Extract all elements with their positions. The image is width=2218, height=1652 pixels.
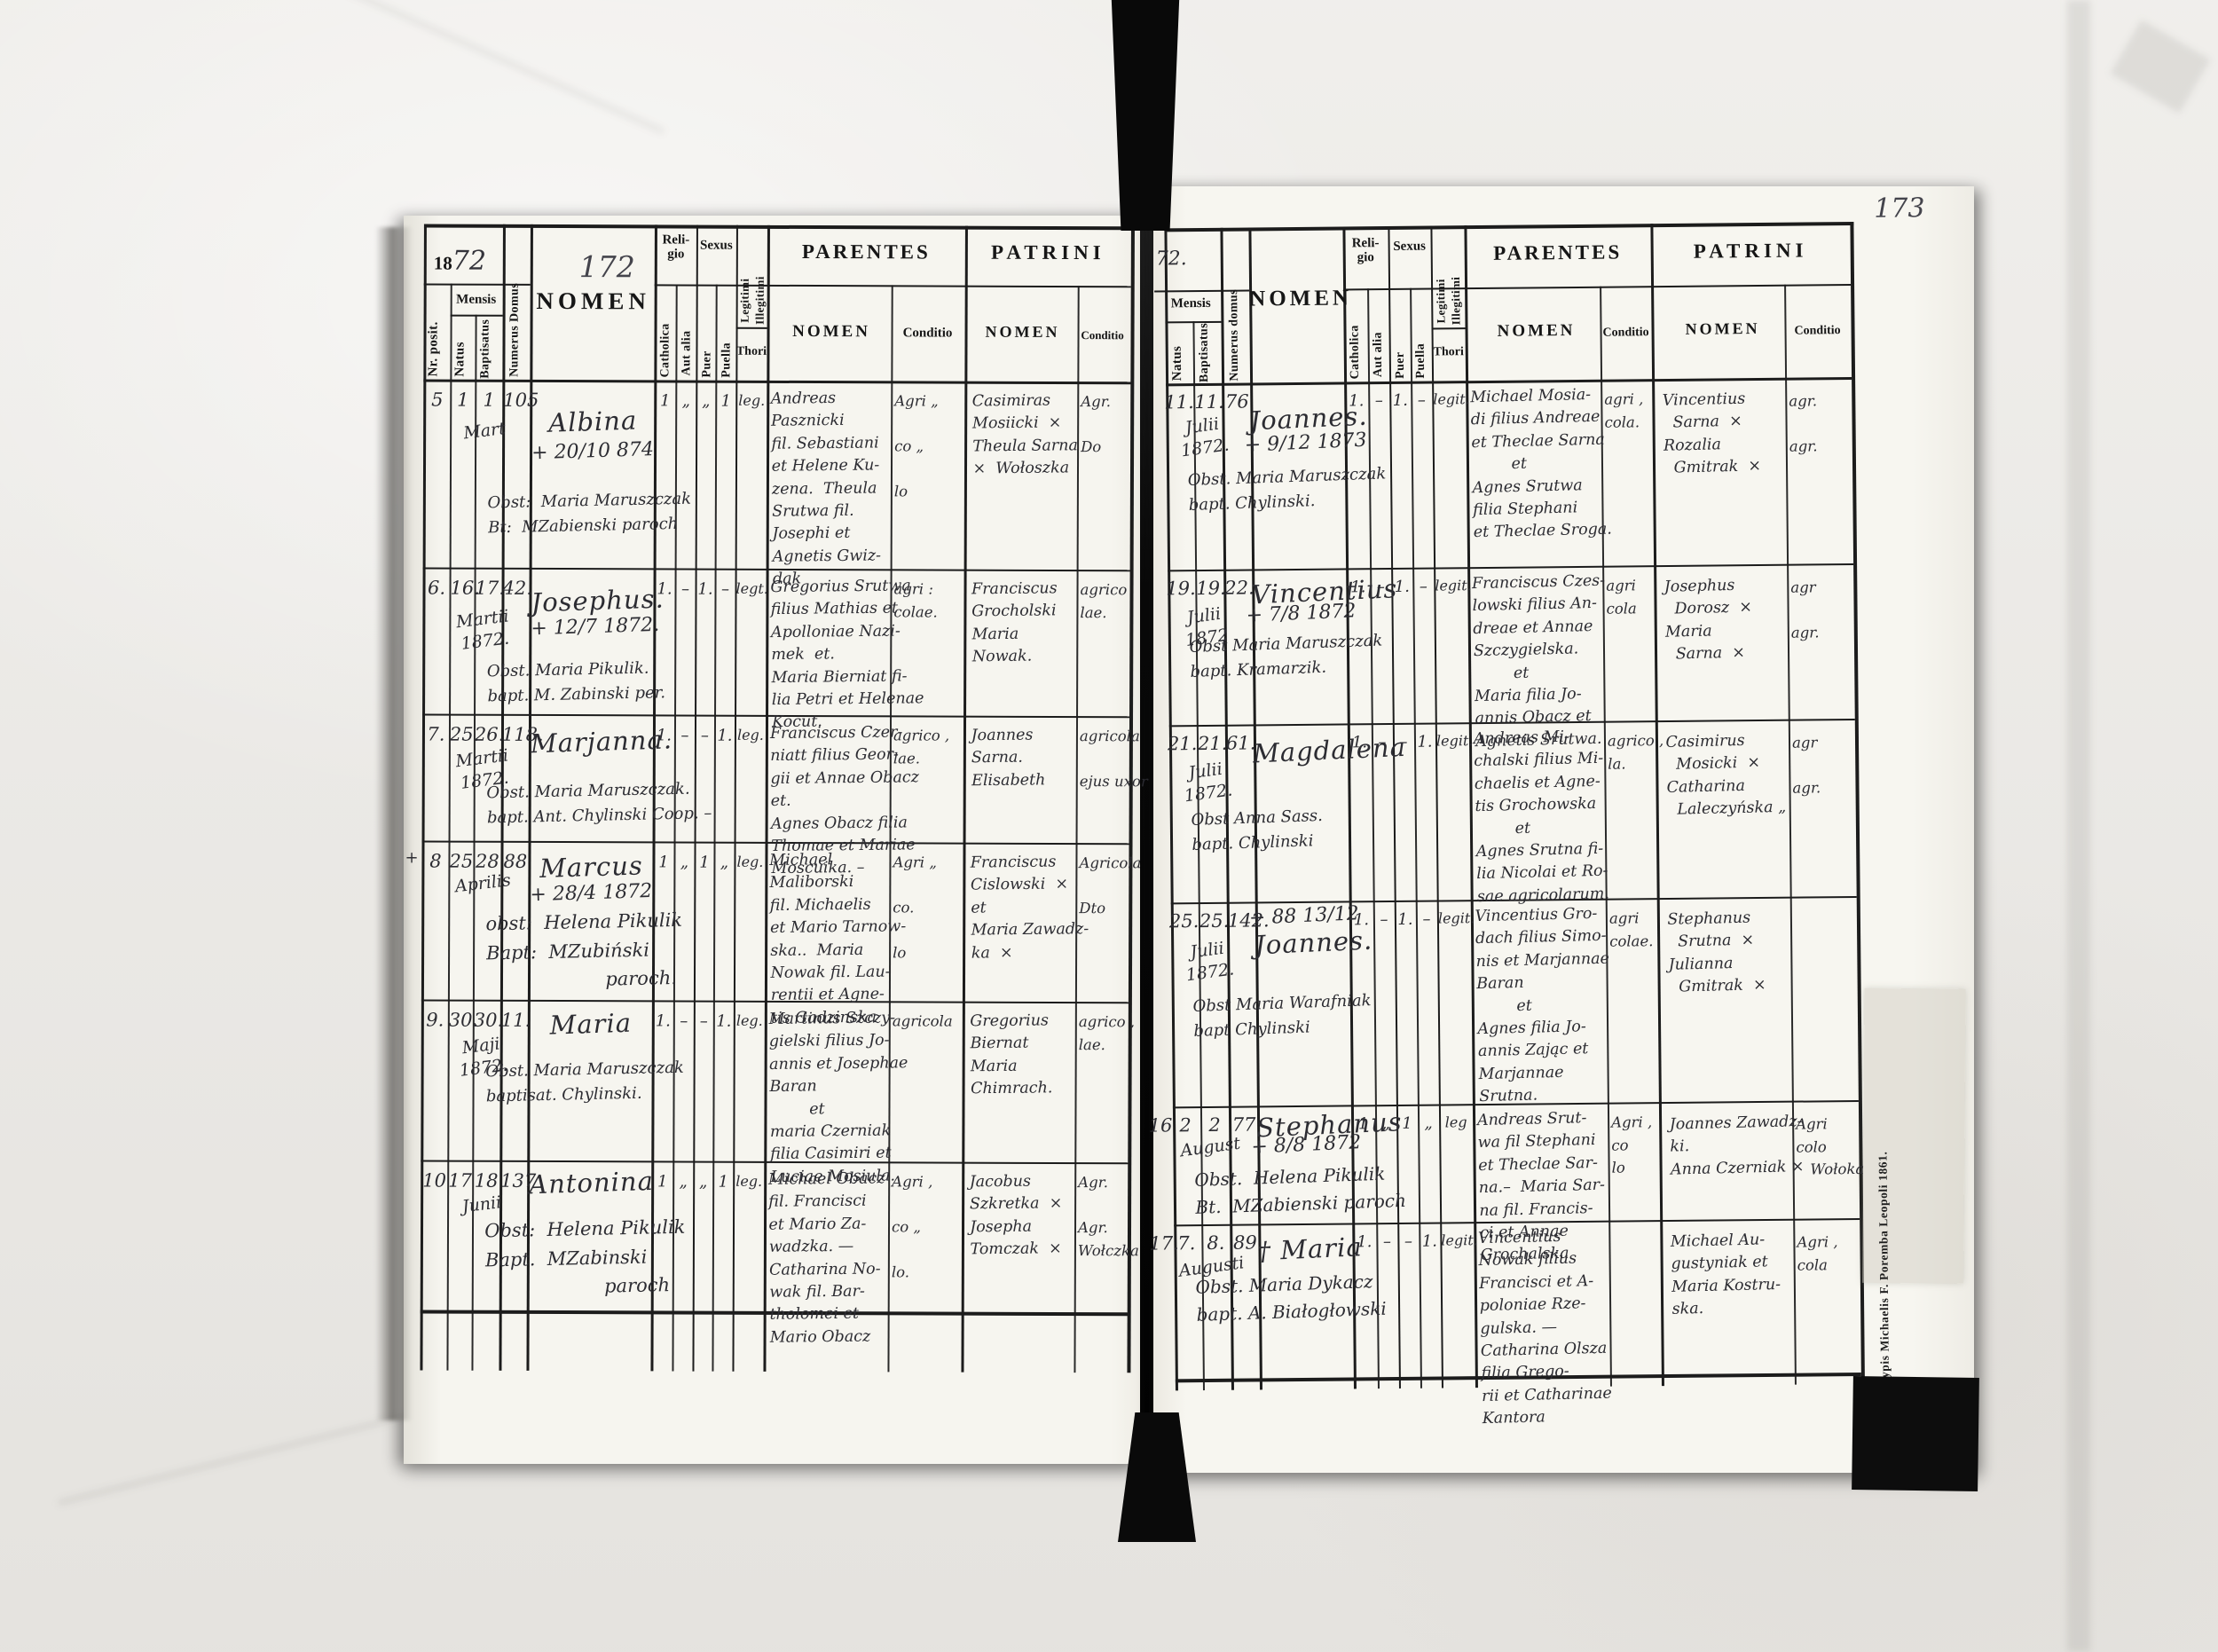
record-baptisatus-day: 21.	[1198, 732, 1224, 757]
godparents-conditio: Agr. Do	[1081, 390, 1111, 459]
record-nr: 17.	[1149, 1231, 1174, 1256]
sexus-puer-mark: 1.	[1396, 909, 1415, 931]
religio-aut-alia-mark: –	[1372, 732, 1392, 753]
thori-mark: legit.	[1441, 1231, 1473, 1249]
col-header-religio: Reli- gio	[1343, 237, 1388, 265]
record-natus-day: 7.	[1172, 1231, 1200, 1256]
midwife-baptizer-note: Obst Maria Maruszczak bapt. Kramarzik.	[1189, 625, 1466, 684]
record-nr: 10	[421, 1168, 447, 1193]
godparents-entry: Franciscus Cislowski × et Maria Zawadz- …	[971, 851, 1089, 964]
parents-conditio: agrico , la.	[1608, 729, 1664, 775]
thori-mark: leg.	[735, 853, 765, 871]
col-header-religio: Reli- gio	[656, 233, 696, 262]
paper-crease	[240, 0, 664, 134]
sexus-puer-mark: –	[1394, 732, 1413, 753]
record-baptisatus-day: 11.	[1194, 390, 1221, 415]
rule-line	[451, 315, 503, 317]
thori-mark: leg.	[735, 726, 766, 744]
record-row: 10 17 18 Junii 137 Antonina Obst: Helena…	[400, 1160, 1137, 1312]
record-house-number: 22.	[1224, 576, 1253, 601]
col-header-nomen: NOMEN	[1249, 287, 1343, 311]
register-left-page: 1872 172 Nr. posit. Mensis Natus Baptisa…	[404, 216, 1140, 1464]
sexus-puer-mark: –	[1398, 1231, 1418, 1253]
record-death-note: + 8/8 1872	[1251, 1129, 1362, 1160]
religio-aut-alia-mark: –	[1374, 909, 1394, 931]
midwife-baptizer-note: Obst. Maria Maruszczak bapt. Chylinski.	[1187, 459, 1464, 517]
parents-conditio: agrico , lae.	[893, 724, 949, 769]
record-house-number: 61.	[1226, 731, 1255, 756]
record-baptisatus-day: 19.	[1196, 577, 1223, 602]
religio-aut-alia-mark: –	[675, 578, 695, 600]
record-nr: 5	[424, 389, 450, 413]
record-name: Maria	[529, 1005, 652, 1043]
sexus-puella-mark: 1.	[1415, 732, 1435, 753]
religio-catholica-mark: 1.	[654, 578, 674, 600]
sexus-puella-mark: 1.	[1420, 1231, 1439, 1253]
col-header-parentes: PARENTES	[767, 241, 965, 264]
right-page-sheet: 72. 173 Mensis Natus Baptisatus Numerus …	[1153, 185, 1986, 1480]
scan-dark-corner	[1852, 1376, 1979, 1491]
record-row: 25. 25. Julii 1872. 142. + 88 13/12 Joan…	[1160, 895, 1983, 1107]
record-natus-day: 17	[448, 1169, 472, 1194]
midwife-baptizer-note: Obst Anna Sass. bapt. Chylinski	[1191, 798, 1467, 857]
col-header-patrini-nomen: NOMEN	[971, 324, 1074, 341]
record-baptisatus-day: 1	[476, 389, 502, 413]
col-header-puella: Puella	[720, 326, 734, 378]
religio-catholica-mark: 1	[653, 852, 673, 873]
record-baptisatus-day: 26.	[475, 723, 501, 748]
parents-entry: Vincentius Gro- dach filius Simo- nis et…	[1475, 903, 1613, 1109]
col-header-baptisatus: Baptisatus	[478, 317, 492, 379]
record-baptisatus-day: 30.	[474, 1009, 500, 1034]
register-scan: 1872 172 Nr. posit. Mensis Natus Baptisa…	[0, 0, 2218, 1652]
col-header-parentes-conditio: Conditio	[1601, 326, 1652, 340]
parents-conditio: Agri , co lo	[1611, 1111, 1653, 1179]
record-nr: 7.	[423, 723, 449, 748]
record-natus-day: 2	[1171, 1113, 1199, 1138]
religio-catholica-mark: 1.	[1349, 732, 1371, 753]
religio-catholica-mark: 1.	[1350, 909, 1372, 931]
record-natus-day: 1	[451, 389, 475, 413]
paper-crease	[2067, 0, 2090, 1652]
left-page-sheet: 1872 172 Nr. posit. Mensis Natus Baptisa…	[399, 215, 1140, 1466]
col-header-parentes-conditio: Conditio	[893, 326, 963, 341]
godparents-entry: Josephus Dorosz × Maria Sarna ×	[1664, 574, 1754, 666]
midwife-baptizer-note: Obst. Maria Maruszczak. bapt. Ant. Chyli…	[486, 775, 753, 830]
record-month: Julii 1872.	[1152, 932, 1267, 991]
record-name: Joannes.	[1254, 924, 1355, 962]
sexus-puer-mark: 1.	[1392, 577, 1412, 598]
parents-conditio: Agri „ co. lo	[893, 851, 937, 964]
record-baptisatus-day: 17.	[475, 577, 501, 602]
col-header-numerus-domus: Numerus Domus	[507, 288, 522, 377]
midwife-baptizer-note: Obst. Helena Pikulik Bt. MZabienski paro…	[1194, 1157, 1471, 1222]
midwife-baptizer-note: Obst: Helena Pikulik Bapt. MZabinski par…	[484, 1211, 752, 1303]
record-death-note: + 20/10 874	[531, 437, 655, 466]
godparents-conditio: agrico , lae.	[1079, 1011, 1135, 1056]
record-row: + 8 25 28 Aprilis 88 Marcus + 28/4 1872 …	[401, 840, 1138, 1002]
col-header-parentes-nomen: NOMEN	[1474, 322, 1598, 341]
sexus-puella-mark: „	[1419, 1113, 1438, 1135]
parents-conditio: agri colae.	[1609, 907, 1654, 953]
godparents-entry: Casimirus Mosicki × Catharina Laleczyńsk…	[1665, 729, 1786, 822]
sexus-puella-mark: –	[715, 579, 735, 601]
religio-catholica-mark: 1.	[653, 1011, 673, 1032]
folio-number: 172	[579, 248, 635, 287]
record-natus-day: 11.	[1164, 390, 1192, 415]
sexus-puella-mark: 1	[716, 391, 735, 413]
godparents-conditio: agrico lae.	[1080, 578, 1127, 624]
record-name: Marjanna.	[530, 723, 653, 761]
col-header-sexus: Sexus	[1388, 240, 1431, 255]
col-header-legitimi: Legitimi	[738, 229, 752, 323]
sexus-puer-mark: 1	[1397, 1113, 1417, 1135]
record-baptisatus-day: 8.	[1202, 1231, 1229, 1256]
col-header-mensis: Mensis	[1161, 297, 1220, 311]
col-header-baptisatus: Baptisatus	[1197, 322, 1212, 382]
record-house-number: 88	[501, 850, 529, 875]
record-natus-day: 30.	[449, 1009, 473, 1034]
record-house-number: 137	[500, 1169, 528, 1194]
record-death-note: + 12/7 1872.	[531, 612, 654, 641]
record-month: Mart	[429, 413, 540, 449]
record-month: Julii 1872.	[1150, 753, 1265, 812]
godparents-conditio: Agr. Agr. Wołczka	[1078, 1171, 1139, 1262]
folio-number: 173	[1874, 191, 1925, 226]
godparents-conditio: agr agr.	[1790, 576, 1819, 644]
record-nr: 6.	[423, 577, 449, 602]
record-natus-day: 25.	[1169, 909, 1198, 934]
parents-conditio: Agri , co „ lo.	[892, 1170, 933, 1284]
record-natus-day: 21.	[1168, 732, 1196, 757]
record-house-number: 89	[1231, 1231, 1259, 1255]
record-row: 5 1 1 Mart 105 Albina + 20/10 874 Obst: …	[403, 379, 1140, 570]
thori-mark: legit.	[1435, 576, 1467, 594]
col-header-nomen: NOMEN	[532, 288, 655, 314]
religio-aut-alia-mark: „	[673, 1171, 693, 1192]
midwife-baptizer-note: Obst Maria Warafniak bapt Chylinski	[1192, 985, 1469, 1043]
sexus-puer-mark: 1.	[696, 579, 714, 601]
religio-catholica-mark: 1	[1352, 1113, 1374, 1135]
thori-mark: leg.	[735, 1011, 765, 1030]
record-house-number: 105	[503, 389, 531, 413]
thori-mark: legit.	[1433, 389, 1465, 408]
thori-mark: legt.	[735, 579, 766, 598]
sexus-puer-mark: –	[695, 1011, 713, 1033]
record-month: Martii 1872.	[427, 602, 541, 659]
sexus-puella-mark: –	[1412, 390, 1431, 412]
page-edge-smudge	[375, 227, 413, 1420]
thori-mark: legit.	[1436, 731, 1468, 750]
record-row: 6. 16. 17. Martii 1872. 42. Josephus. + …	[402, 567, 1139, 716]
col-header-catholica: Catholica	[658, 299, 672, 377]
midwife-baptizer-note: obst: Helena Pikulik Bapt: MZubiński par…	[485, 904, 753, 996]
religio-catholica-mark: 1.	[1345, 390, 1367, 412]
record-row: 21. 21. Julii 1872. 61. Magdalena Obst A…	[1159, 718, 1981, 903]
col-header-sexus: Sexus	[696, 240, 736, 254]
record-natus-day: 25.	[450, 723, 474, 748]
parents-entry: Michael Mosia- di filius Andreae et Thec…	[1470, 384, 1612, 545]
year-printed: 18	[434, 253, 452, 274]
thori-mark: leg.	[736, 391, 767, 410]
godparents-entry: Franciscus Grocholski Maria Nowak.	[971, 578, 1058, 669]
religio-aut-alia-mark: „	[674, 852, 694, 873]
record-death-note: + 9/12 1873	[1244, 428, 1355, 459]
parents-conditio: agri : colae.	[893, 578, 937, 623]
record-baptisatus-day: 18	[473, 1169, 499, 1194]
sexus-puella-mark: 1	[713, 1172, 733, 1193]
religio-aut-alia-mark: –	[1371, 577, 1390, 598]
col-header-aut-alia: Aut alia	[1371, 308, 1386, 377]
register-right-page: 72. 173 Mensis Natus Baptisatus Numerus …	[1153, 186, 1974, 1473]
col-header-catholica: Catholica	[1348, 303, 1363, 379]
col-header-patrini-conditio: Conditio	[1076, 329, 1129, 342]
godparents-conditio: agr agr.	[1792, 731, 1821, 799]
sexus-puer-mark: –	[696, 726, 714, 747]
religio-aut-alia-mark: –	[675, 725, 695, 746]
religio-aut-alia-mark: –	[674, 1011, 694, 1032]
year-handwritten: 72	[452, 246, 486, 277]
thori-mark: leg.	[734, 1172, 764, 1191]
record-name: Albina	[531, 403, 655, 441]
godparents-conditio: Agricola Dto	[1079, 852, 1141, 920]
godparents-entry: Casimiras Mosiicki × Theula Sarna × Woło…	[972, 389, 1079, 481]
sexus-puella-mark: –	[1413, 577, 1433, 598]
record-house-number: 42.	[502, 577, 530, 602]
record-name: † Maria	[1257, 1230, 1358, 1268]
parents-conditio: agri cola	[1606, 574, 1637, 619]
parents-entry: Andreas Pasznicki fil. Sebastiani et Hel…	[771, 387, 882, 591]
sexus-puer-mark: „	[696, 391, 715, 413]
record-natus-day: 25	[449, 850, 473, 875]
sexus-puer-mark: 1.	[1390, 390, 1410, 412]
record-row: 16 2 2 August 77 Stephanus + 8/8 1872 Ob…	[1162, 1099, 1984, 1225]
record-nr: 16	[1148, 1113, 1173, 1138]
record-baptisatus-day: 25.	[1199, 909, 1226, 934]
record-death-note: + 28/4 1872	[530, 878, 653, 908]
godparents-entry: Jacobus Szkretka × Josepha Tomczak ×	[970, 1170, 1063, 1262]
sexus-puer-mark: 1	[695, 853, 713, 874]
godparents-entry: Vincentius Sarna × Rozalia Gmitrak ×	[1662, 388, 1761, 480]
record-house-number: 76	[1223, 390, 1251, 415]
parents-conditio: agricola	[893, 1010, 953, 1033]
col-header-illegitimi: Illegitimi	[753, 227, 767, 325]
godparents-conditio: Agri colo Wołoka	[1796, 1113, 1864, 1181]
parents-conditio: Agri „ co „ lo	[894, 389, 939, 503]
col-header-legitimi: Legitimi	[1433, 229, 1448, 323]
religio-aut-alia-mark: „	[676, 390, 696, 412]
sexus-puella-mark: 1.	[714, 1011, 734, 1033]
godparents-entry: Gregorius Biernat Maria Chimrach.	[970, 1010, 1052, 1100]
record-natus-day: 19.	[1166, 577, 1194, 602]
col-header-natus: Natus	[1169, 326, 1185, 381]
col-header-patrini-conditio: Conditio	[1787, 325, 1849, 338]
col-header-nr-posit: Nr. posit.	[426, 297, 441, 377]
religio-aut-alia-mark: –	[1377, 1231, 1396, 1253]
midwife-baptizer-note: Obst. Maria Dykacz bapt. A. Białogłowski	[1195, 1264, 1472, 1329]
col-header-patrini-nomen: NOMEN	[1664, 320, 1780, 338]
record-row: 19. 19. Julii 1872 22. Vincentius + 7/8 …	[1157, 562, 1979, 726]
year-handwritten: 72.	[1156, 246, 1187, 271]
rule-line	[736, 327, 767, 329]
record-natus-day: 16.	[450, 577, 474, 602]
thori-mark: legit.	[1438, 909, 1470, 927]
record-row: 7. 25. 26. Martii 1872. 118. Marjanna. O…	[402, 713, 1138, 843]
col-header-puer: Puer	[700, 332, 714, 378]
religio-aut-alia-mark: „	[1376, 1113, 1396, 1135]
col-header-aut-alia: Aut alia	[680, 305, 694, 376]
sexus-puer-mark: „	[694, 1172, 712, 1193]
midwife-baptizer-note: Obst. Maria Maruszczak baptisat. Chylins…	[485, 1054, 752, 1109]
record-name: Magdalena	[1252, 732, 1353, 770]
godparents-entry: Stephanus Srutna × Julianna Gmitrak ×	[1667, 907, 1766, 999]
record-nr: 8	[422, 850, 448, 875]
sexus-puella-mark: „	[714, 853, 734, 874]
col-header-puer: Puer	[1394, 333, 1408, 379]
godparents-conditio: agr. agr.	[1789, 389, 1817, 458]
record-name: Antonina	[529, 1164, 652, 1202]
col-header-mensis: Mensis	[448, 294, 505, 308]
religio-catholica-mark: 1.	[654, 725, 674, 746]
record-nr: 9.	[422, 1008, 448, 1033]
record-row: 11. 11. Julii 1872. 76 Joannes. + 9/12 1…	[1155, 376, 1978, 570]
religio-catholica-mark: 1	[652, 1171, 672, 1192]
col-header-thori: Thori	[735, 346, 767, 359]
record-house-number: 11.	[501, 1009, 529, 1034]
religio-aut-alia-mark: –	[1369, 390, 1388, 412]
col-header-natus: Natus	[452, 320, 468, 377]
paper-crease	[2111, 20, 2211, 114]
religio-catholica-mark: 1.	[1347, 577, 1369, 598]
col-header-parentes-nomen: NOMEN	[776, 323, 887, 341]
col-header-thori: Thori	[1432, 346, 1466, 359]
parents-entry: Vincentius Nowak filius Francisci et A- …	[1478, 1225, 1613, 1431]
col-header-parentes: PARENTES	[1465, 241, 1651, 264]
godparents-conditio: agricola ejus uxor	[1080, 725, 1148, 793]
printer-imprint: Typis Michaelis F. Poremba Leopoli 1861.	[1876, 1151, 1892, 1385]
record-row: 9. 30. 30. Maji 1872. 11. Maria Obst. Ma…	[400, 999, 1137, 1162]
col-header-patrini: PATRINI	[1651, 240, 1851, 263]
parents-entry: Michael Obacz fil. Francisci et Mario Za…	[768, 1168, 887, 1349]
year-label: 1872	[434, 246, 486, 277]
sexus-puella-mark: –	[1417, 909, 1436, 931]
midwife-baptizer-note: Obst: Maria Maruszczak Bt: MZabienski pa…	[487, 485, 754, 540]
record-house-number: 118.	[502, 723, 530, 748]
midwife-baptizer-note: Obst. Maria Pikulik. bapt. M. Zabinski p…	[487, 654, 754, 709]
col-header-illegitimi: Illegitimi	[1448, 227, 1463, 325]
godparents-entry: Michael Au- gustyniak et Maria Kostru- s…	[1671, 1229, 1781, 1321]
rule-line	[1432, 327, 1466, 329]
religio-catholica-mark: 1.	[1353, 1231, 1375, 1253]
religio-catholica-mark: 1	[655, 390, 675, 412]
thori-mark: leg	[1440, 1113, 1472, 1131]
col-header-numerus-domus: Numerus domus	[1227, 288, 1242, 382]
sexus-puella-mark: 1.	[715, 726, 735, 747]
record-death-note: + 7/8 1872	[1246, 598, 1357, 629]
col-header-puella: Puella	[1414, 327, 1429, 379]
parents-conditio: agri , cola.	[1604, 388, 1644, 434]
paper-crease	[59, 1410, 421, 1505]
godparents-entry: Joannes Sarna. Elisabeth	[971, 724, 1045, 792]
parents-entry: Andreas Mi- chalski filius Mi- chaelis e…	[1473, 726, 1609, 909]
godparents-conditio: Agri , cola	[1797, 1231, 1838, 1277]
col-header-patrini: PATRINI	[965, 242, 1131, 264]
